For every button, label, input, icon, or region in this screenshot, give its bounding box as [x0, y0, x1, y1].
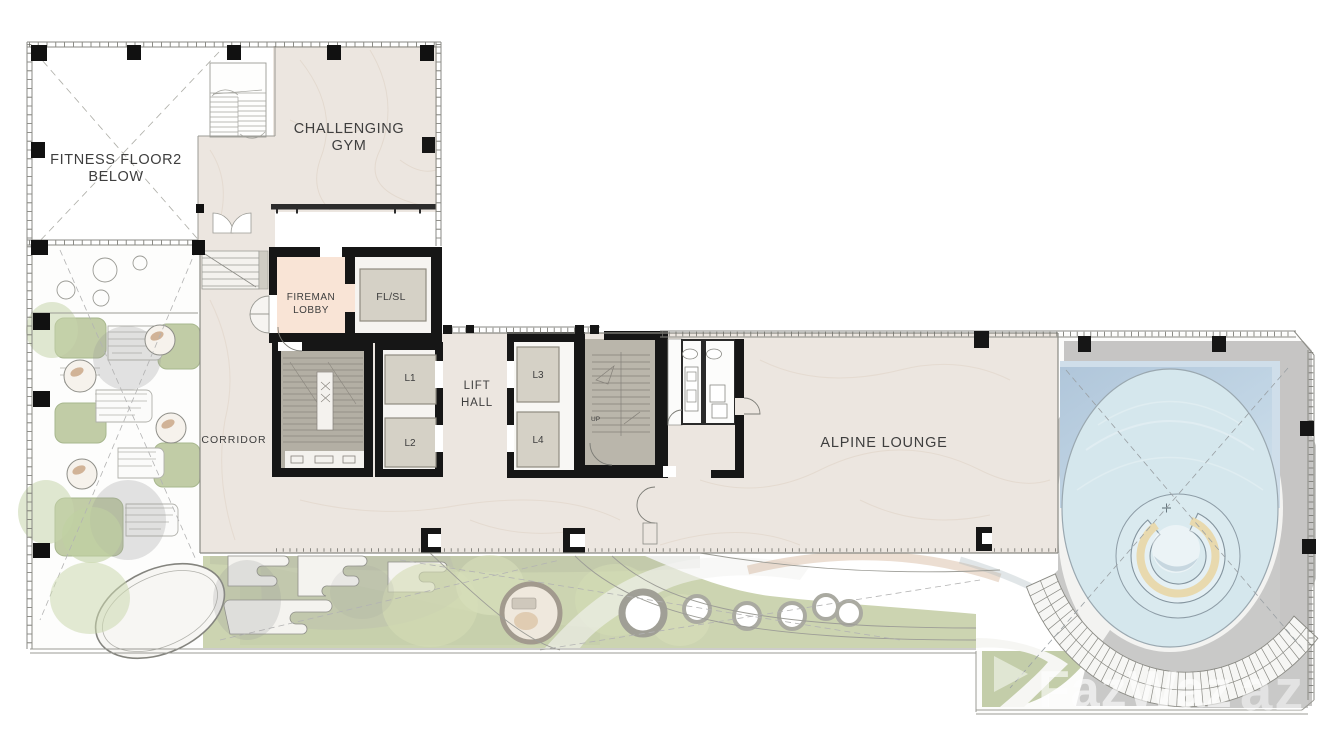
svg-text:HALL: HALL [461, 397, 493, 409]
svg-text:ALPINE LOUNGE: ALPINE LOUNGE [820, 435, 947, 451]
svg-text:UP: UP [591, 416, 600, 423]
svg-text:CORRIDOR: CORRIDOR [201, 434, 266, 446]
svg-text:L2: L2 [404, 438, 416, 449]
svg-text:GYM: GYM [332, 138, 367, 154]
svg-text:BELOW: BELOW [88, 169, 143, 185]
svg-text:CHALLENGING: CHALLENGING [294, 121, 405, 137]
svg-text:az: az [1240, 658, 1305, 723]
svg-text:FIREMAN: FIREMAN [287, 292, 336, 303]
svg-text:L1: L1 [404, 373, 416, 384]
svg-text:L3: L3 [532, 370, 544, 381]
svg-text:FazWaz: FazWaz [1038, 661, 1233, 719]
svg-text:LOBBY: LOBBY [293, 305, 329, 316]
svg-text:FITNESS FLOOR2: FITNESS FLOOR2 [50, 152, 182, 168]
svg-text:FL/SL: FL/SL [376, 291, 406, 303]
svg-text:L4: L4 [532, 435, 544, 446]
svg-text:LIFT: LIFT [464, 380, 491, 392]
